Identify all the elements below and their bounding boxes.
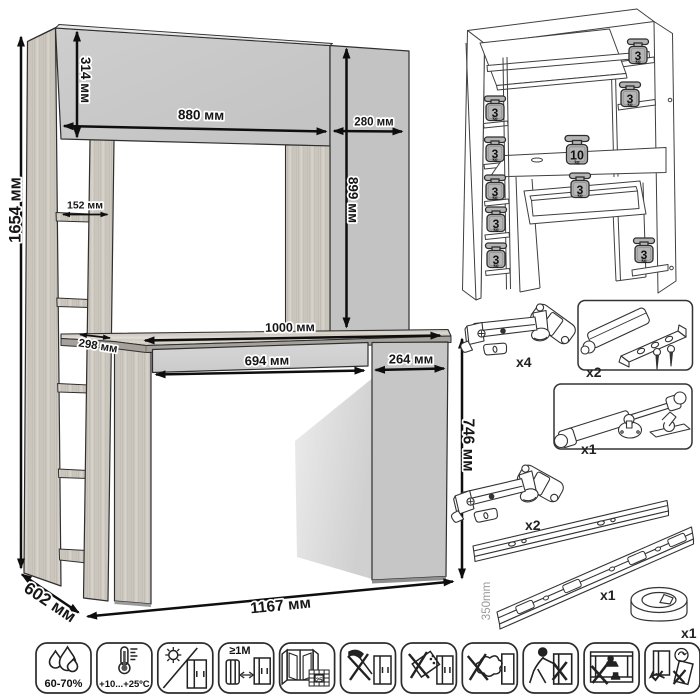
svg-text:x1: x1 bbox=[600, 587, 616, 603]
svg-text:350mm: 350mm bbox=[481, 582, 493, 620]
svg-text:1167 мм: 1167 мм bbox=[249, 595, 311, 618]
svg-text:x4: x4 bbox=[516, 354, 532, 370]
svg-text:x1: x1 bbox=[681, 625, 697, 641]
svg-text:746 мм: 746 мм bbox=[460, 418, 477, 471]
svg-text:+10...+25ºC: +10...+25ºC bbox=[99, 679, 150, 690]
svg-text:60-70%: 60-70% bbox=[45, 678, 83, 690]
svg-text:1654 мм: 1654 мм bbox=[7, 177, 25, 243]
svg-text:314 мм: 314 мм bbox=[78, 57, 93, 103]
svg-text:899 мм: 899 мм bbox=[346, 177, 361, 223]
svg-text:x2: x2 bbox=[586, 364, 602, 380]
svg-text:264 мм: 264 мм bbox=[389, 352, 434, 367]
svg-text:x1: x1 bbox=[581, 441, 597, 457]
svg-text:≥1М: ≥1М bbox=[229, 645, 250, 657]
svg-text:880 мм: 880 мм bbox=[178, 107, 225, 123]
svg-text:694 мм: 694 мм bbox=[245, 353, 290, 369]
svg-text:152 мм: 152 мм bbox=[67, 200, 103, 212]
svg-text:1000 мм: 1000 мм bbox=[265, 320, 315, 335]
svg-text:280 мм: 280 мм bbox=[354, 117, 393, 129]
svg-text:602 мм: 602 мм bbox=[21, 578, 80, 626]
svg-text:25: 25 bbox=[316, 678, 323, 684]
